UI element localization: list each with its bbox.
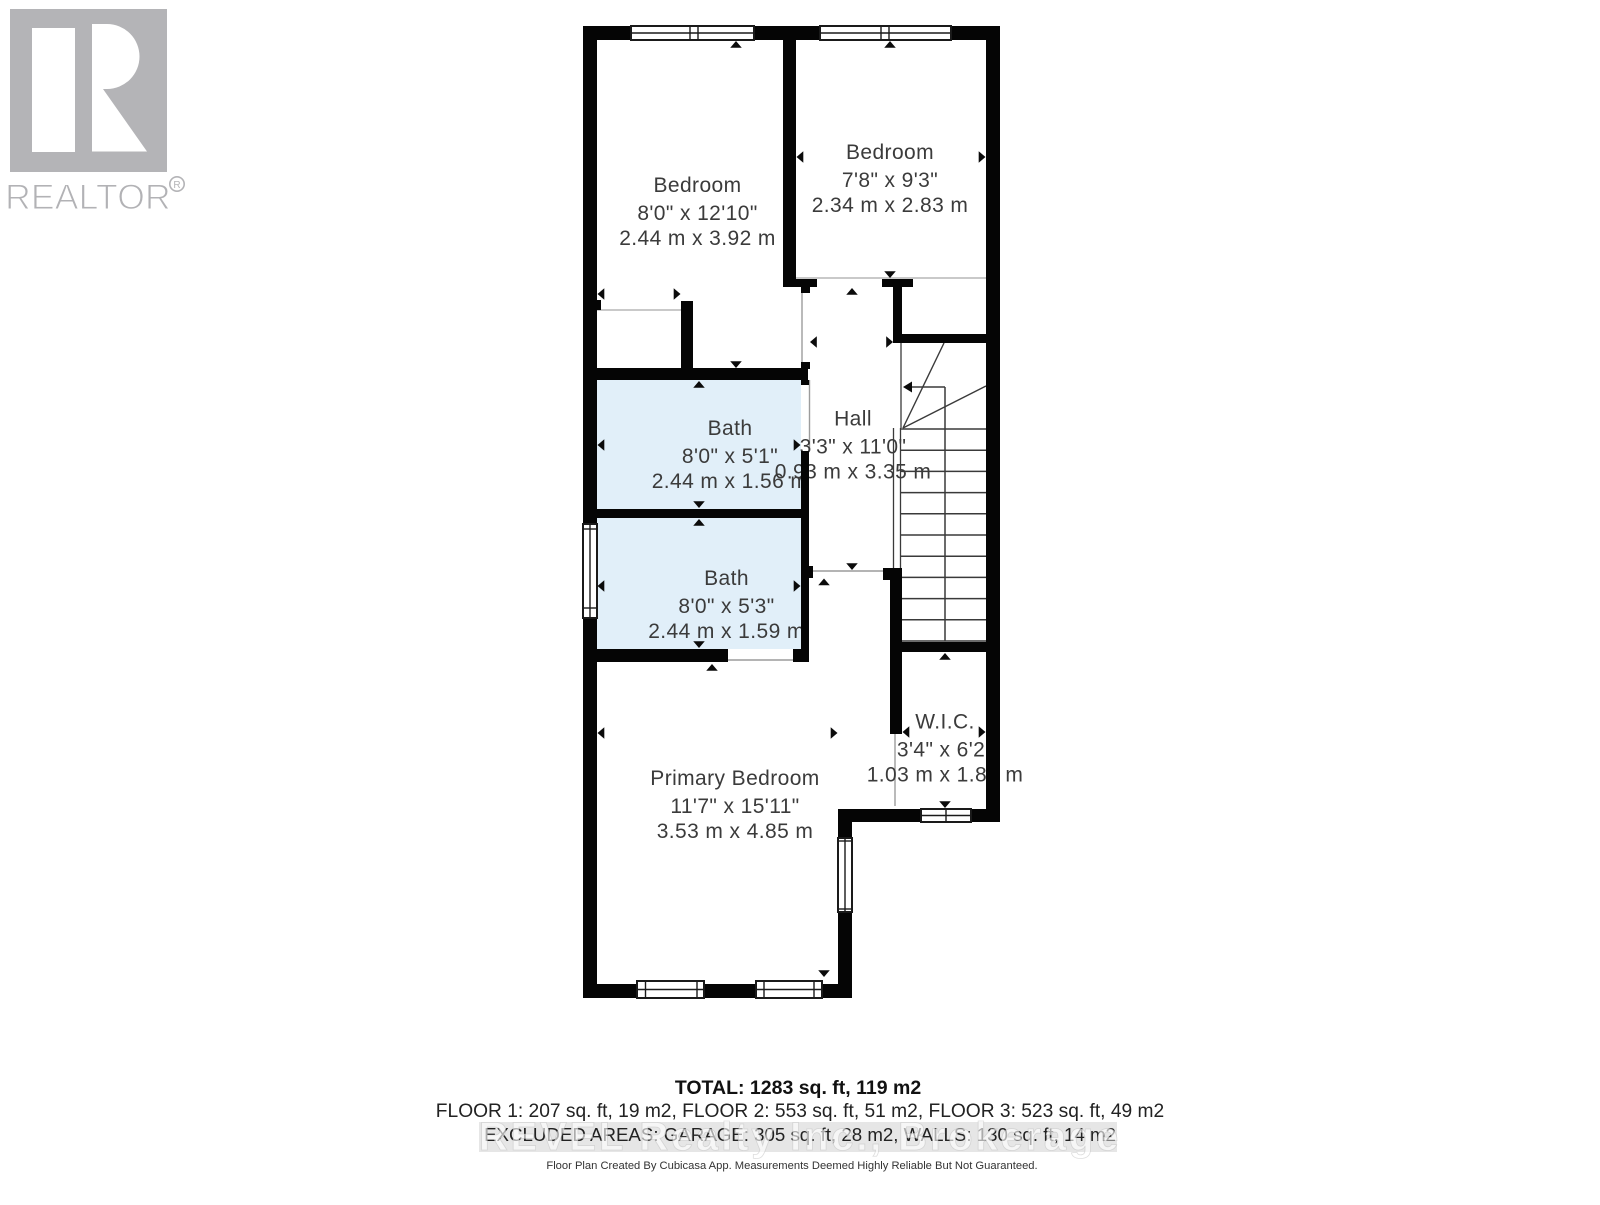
svg-text:8'0" x 12'10": 8'0" x 12'10"	[637, 202, 757, 225]
svg-text:Bedroom: Bedroom	[653, 174, 741, 197]
svg-text:2.44 m x 3.92 m: 2.44 m x 3.92 m	[619, 227, 776, 250]
svg-text:8'0" x 5'1": 8'0" x 5'1"	[682, 445, 778, 468]
svg-text:TOTAL: 1283 sq. ft, 119 m2: TOTAL: 1283 sq. ft, 119 m2	[675, 1077, 922, 1099]
svg-text:7'8" x 9'3": 7'8" x 9'3"	[842, 169, 938, 192]
svg-text:REVEL Realty Inc., Brokerage: REVEL Realty Inc., Brokerage	[479, 1115, 1121, 1159]
svg-text:W.I.C.: W.I.C.	[915, 710, 975, 733]
svg-text:Floor Plan Created By Cubicasa: Floor Plan Created By Cubicasa App. Meas…	[546, 1160, 1037, 1172]
svg-text:0.93 m x 3.35 m: 0.93 m x 3.35 m	[775, 460, 932, 483]
svg-text:2.34 m x 2.83 m: 2.34 m x 2.83 m	[812, 194, 969, 217]
svg-text:Primary Bedroom: Primary Bedroom	[650, 767, 819, 790]
svg-text:3'3" x 11'0": 3'3" x 11'0"	[800, 435, 907, 458]
svg-text:3.53 m x 4.85 m: 3.53 m x 4.85 m	[657, 820, 814, 843]
svg-text:Hall: Hall	[834, 407, 872, 430]
svg-text:Bath: Bath	[704, 567, 749, 590]
svg-text:Bedroom: Bedroom	[846, 141, 934, 164]
svg-text:REALTOR: REALTOR	[5, 177, 171, 217]
svg-text:R: R	[173, 180, 180, 191]
svg-text:Bath: Bath	[708, 417, 753, 440]
svg-text:11'7" x 15'11": 11'7" x 15'11"	[670, 795, 799, 818]
svg-text:2.44 m x 1.59 m: 2.44 m x 1.59 m	[648, 620, 805, 643]
svg-text:3'4" x 6'2": 3'4" x 6'2"	[897, 738, 993, 761]
svg-text:8'0" x 5'3": 8'0" x 5'3"	[678, 595, 774, 618]
